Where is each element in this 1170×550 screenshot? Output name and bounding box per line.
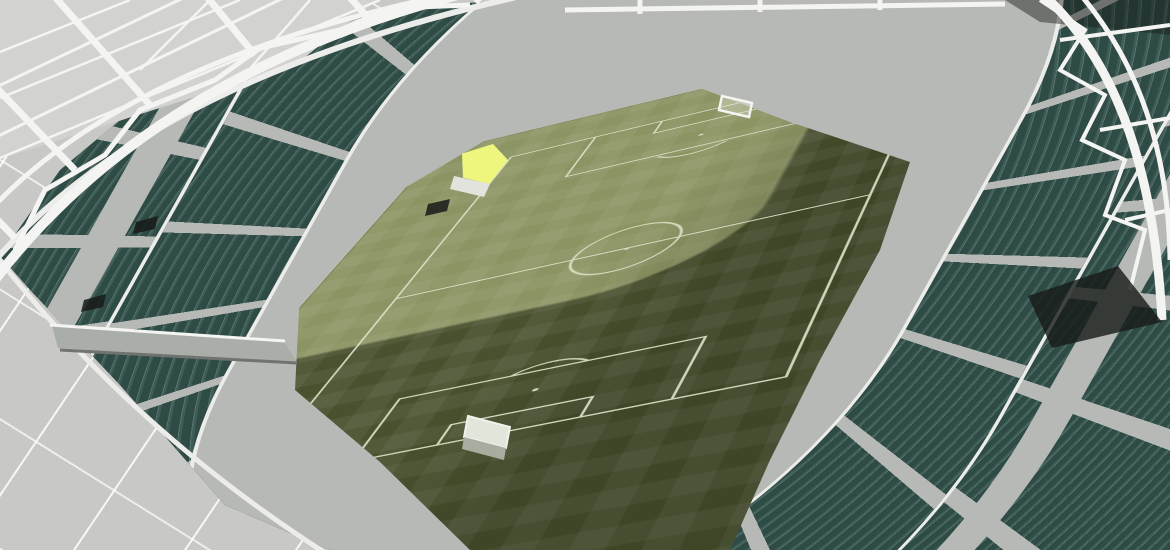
stadium-3d-view xyxy=(0,0,1170,550)
